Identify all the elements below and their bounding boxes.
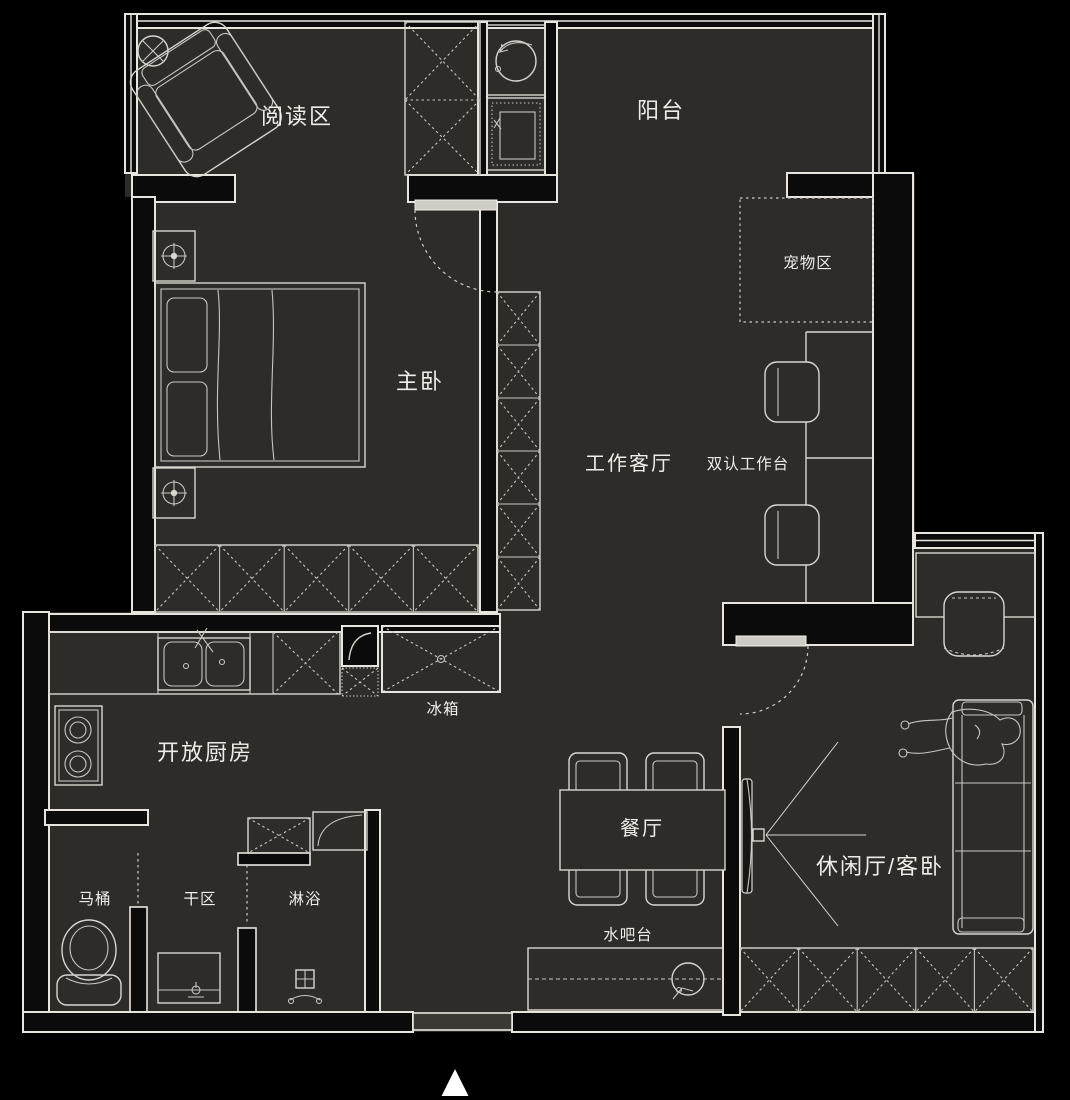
leisure-chair [944,592,1004,656]
label-master-bedroom: 主卧 [396,369,444,394]
label-dual-workstation: 双认工作台 [707,455,790,473]
wall-below-entry-closet [238,853,310,865]
wall-leisure-west [723,727,740,1015]
wall-toilet-dry-divider [130,907,147,1015]
wall-living-east-column [873,173,913,645]
desk-chair-top [765,362,819,422]
wall-dry-shower-divider [238,928,256,1015]
label-leisure-guest-room: 休闲厅/客卧 [816,854,944,879]
entrance-arrow-icon: ▲ [432,1054,478,1100]
wall-toilet-north [45,810,148,825]
label-toilet: 马桶 [78,890,111,908]
wall-bottom-left [23,1012,413,1032]
wall-bottom-right [512,1012,1043,1032]
wall-balcony-stub [787,173,877,197]
label-dining-room: 餐厅 [620,817,664,840]
wall-outer-east [1035,533,1043,1032]
bedroom-door-leaf [415,200,497,210]
label-fridge: 冰箱 [426,700,459,718]
wall-laundry-balcony [545,22,557,175]
leisure-door-leaf [736,636,806,646]
label-pet-area: 宠物区 [783,254,833,272]
projection-screen [742,779,752,893]
desk-chair-bottom [765,505,819,565]
label-balcony: 阳台 [637,98,685,123]
label-reading-area: 阅读区 [261,104,333,129]
label-shower: 淋浴 [288,890,321,908]
label-open-kitchen: 开放厨房 [157,740,253,765]
oven [342,626,378,666]
label-water-bar: 水吧台 [603,926,653,944]
wall-bedroom-west [132,197,155,612]
lamp-dot-top [171,253,177,259]
entrance-threshold [413,1013,512,1030]
wall-under-closets [408,175,557,202]
floor-plan: 阅读区 阳台 宠物区 主卧 工作客厅 双认工作台 冰箱 开放厨房 餐厅 水吧台 … [0,0,1070,1100]
wall-bedroom-south [49,614,500,632]
lamp-dot-bottom [171,490,177,496]
wall-bedroom-east [480,202,497,612]
label-work-living-room: 工作客厅 [585,452,673,475]
label-dry-area: 干区 [183,891,216,908]
